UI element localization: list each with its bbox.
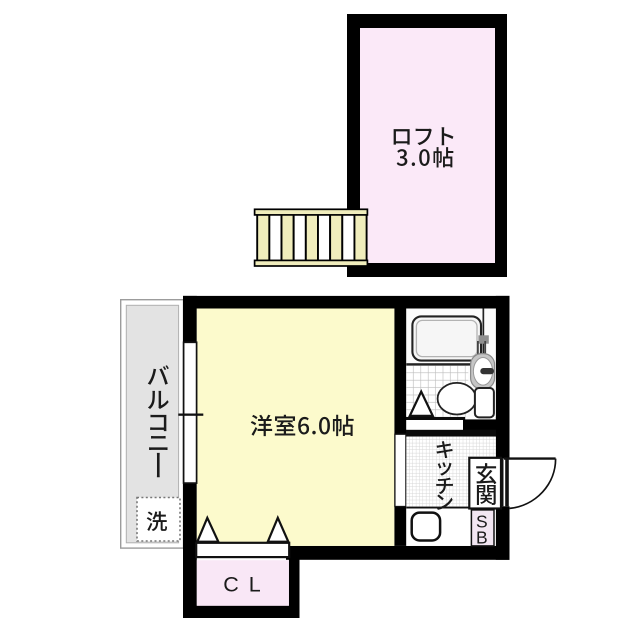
svg-text:B: B <box>476 528 488 548</box>
svg-text:C L: C L <box>223 573 262 597</box>
